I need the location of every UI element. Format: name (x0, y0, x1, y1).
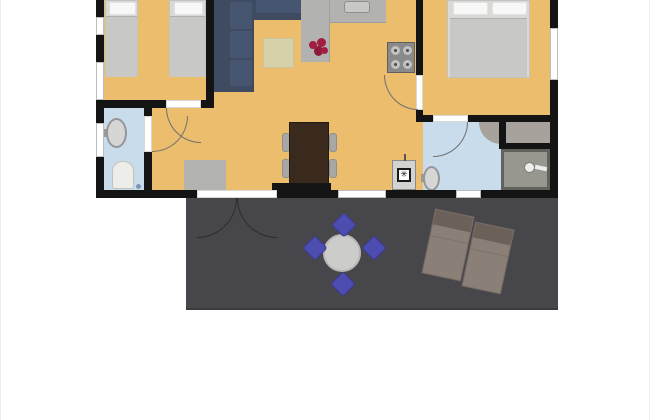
shower-head-icon (524, 162, 535, 173)
bathroom-1-sink (106, 118, 127, 148)
wall-closet-bottom (499, 143, 558, 149)
window-bedroom2 (550, 28, 558, 80)
window-living-south (338, 190, 386, 198)
dining-chair (329, 159, 337, 178)
twin-bed-left (105, 0, 138, 76)
corner-sofa-left-section (214, 0, 254, 92)
lounger-seam (430, 235, 467, 244)
sofa-cushion (230, 60, 252, 86)
washing-machine-drum: ✳ (397, 168, 411, 182)
double-bed (447, 0, 530, 78)
stove (387, 42, 415, 73)
shower-handle (535, 165, 548, 171)
stove-burner (391, 60, 400, 69)
stove-burner (403, 60, 412, 69)
flower-decor (309, 38, 329, 58)
bed-blanket (106, 16, 137, 77)
dining-chair (329, 133, 337, 152)
window-bathroom1 (96, 123, 104, 157)
dining-table (289, 122, 329, 188)
closet-floor (506, 122, 550, 143)
stove-burner (403, 46, 412, 55)
sofa-cushion (230, 2, 252, 29)
twin-bed-right (169, 0, 206, 76)
lounger-seam (470, 248, 507, 257)
door-bedroom1 (166, 100, 201, 108)
wall-exterior-bottom (96, 190, 558, 198)
rug-gray-hallway (184, 160, 226, 190)
bathroom-2-sink (423, 166, 440, 191)
washing-machine-pipe (404, 154, 406, 161)
door-bathroom1 (144, 116, 152, 152)
bed-pillow (109, 2, 136, 15)
window-bedroom1-a (96, 17, 104, 35)
bed-pillow (174, 2, 203, 15)
rug-beige (263, 38, 294, 68)
bed-blanket (450, 18, 527, 77)
bed-pillow (453, 2, 488, 15)
wall-bedroom1-right (206, 0, 214, 108)
bed-blanket (170, 16, 205, 77)
floor-drain (136, 184, 141, 189)
door-terrace-french (197, 190, 277, 198)
bed-pillow (492, 2, 527, 15)
sofa-cushion (230, 31, 252, 58)
flower-dot (321, 47, 328, 54)
kitchen-sink (344, 1, 370, 13)
washing-machine: ✳ (392, 160, 416, 190)
floorplan-canvas: ✳ (0, 0, 650, 420)
window-bedroom1-b (96, 62, 104, 100)
window-bathroom2-south (456, 190, 481, 198)
shower (501, 149, 550, 190)
door-bathroom2 (433, 115, 468, 122)
patio-table (323, 234, 361, 272)
toilet (112, 161, 134, 189)
stove-burner (391, 46, 400, 55)
